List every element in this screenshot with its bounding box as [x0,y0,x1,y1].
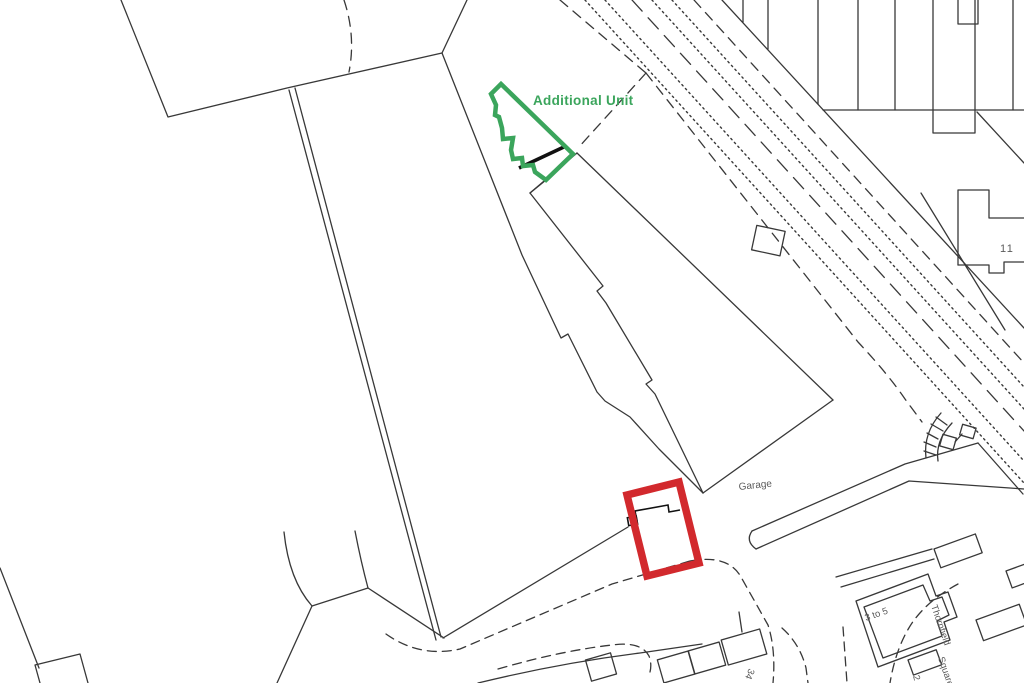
map-labels: Garage 11 3 to 5 Thornfield Square 2 34 [738,243,1014,683]
railway-boundary-longdash [632,0,1024,431]
additional-unit-label: Additional Unit [533,93,634,108]
site-plan-svg: Additional Unit Garage 11 3 to 5 Thornfi… [0,0,1024,683]
square-label: Square [935,655,955,683]
road-kerbs [443,443,1024,683]
building-11-outline [958,190,1024,273]
yard-south-boundary [0,531,444,683]
building-detail-lines [519,146,680,526]
footbridge-steps [924,413,976,461]
green-highlight-group: Additional Unit [491,84,634,180]
red-highlight-rectangle [627,482,699,576]
garage-label: Garage [738,479,773,493]
red-highlight-group [627,482,699,576]
parcel-boundary-northwest [121,0,467,117]
railway-side-hut [752,225,786,255]
house-34-label: 34 [742,667,756,681]
long-narrow-building [289,88,441,640]
three-to-five-label: 3 to 5 [863,606,889,624]
terrace-houses [722,0,1024,330]
building-11-label: 11 [1000,243,1014,255]
map-linework [0,0,1024,683]
house-2-label: 2 [910,674,922,682]
site-plan-map: Additional Unit Garage 11 3 to 5 Thornfi… [0,0,1024,683]
thornfield-square-buildings [856,534,1024,675]
